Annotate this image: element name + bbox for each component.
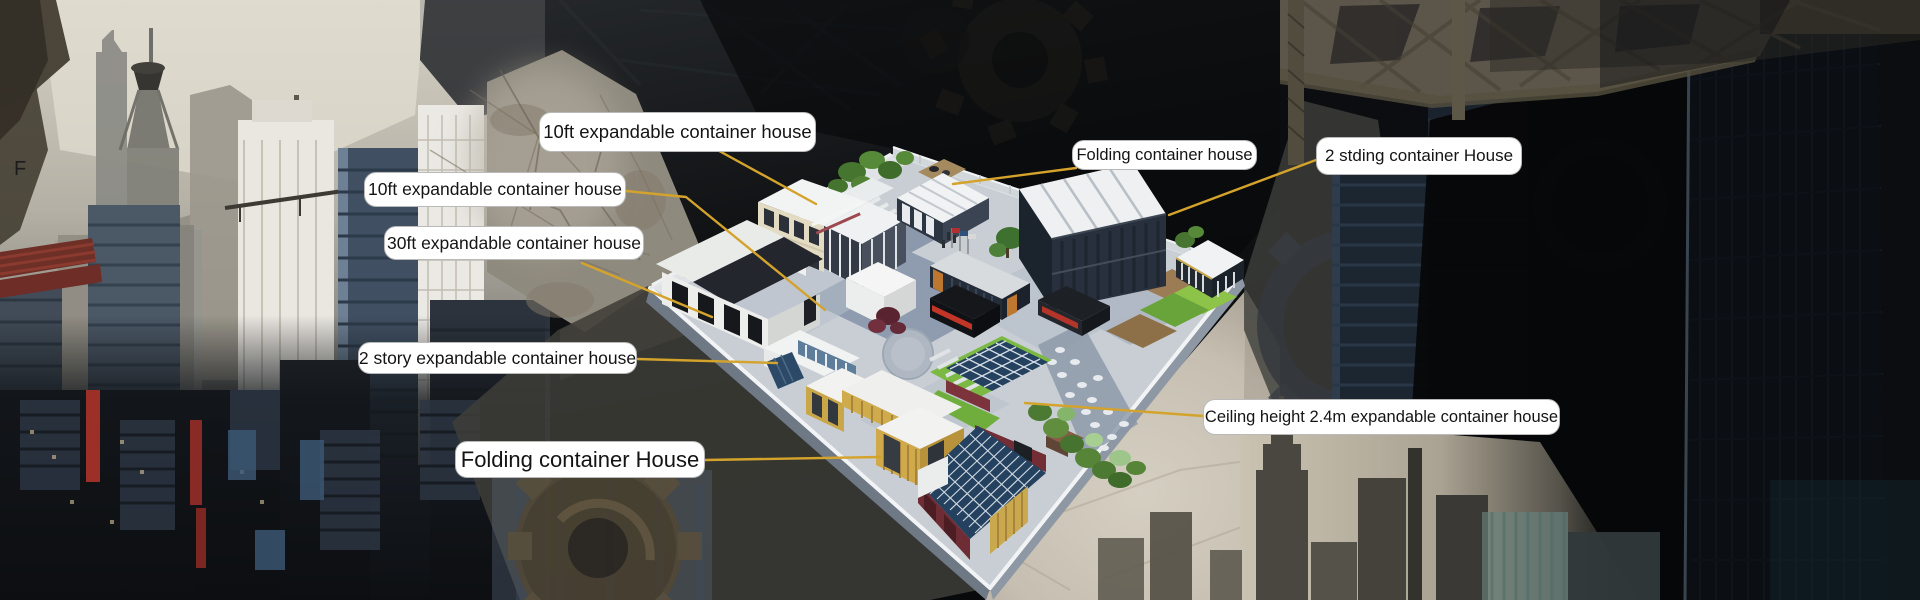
svg-text:F: F xyxy=(14,158,26,180)
